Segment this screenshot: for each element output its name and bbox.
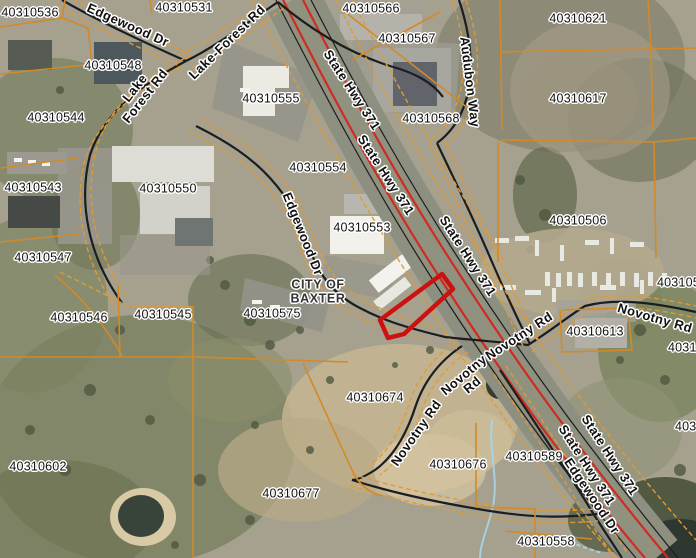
aerial-map-canvas (0, 0, 696, 558)
pond (118, 495, 164, 537)
map-viewport[interactable]: CITY OF BAXTER 4031053640310531403105664… (0, 0, 696, 558)
